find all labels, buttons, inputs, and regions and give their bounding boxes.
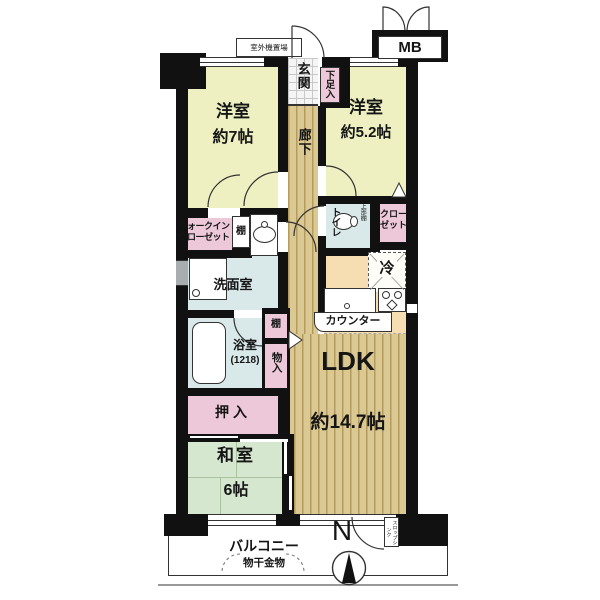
sliding-door xyxy=(190,436,238,439)
door-opening xyxy=(318,166,326,196)
burner-icon xyxy=(394,291,402,299)
floor-plan: 棚 カウンター MB 室外機置場 スロップシンク xyxy=(0,0,600,600)
slop-sink: スロップシンク xyxy=(384,517,399,547)
bath-name-label: 浴室 xyxy=(226,338,264,352)
shelf-bath-label: 棚 xyxy=(265,319,287,331)
sink-icon xyxy=(253,226,276,243)
bathtub-icon xyxy=(192,322,226,384)
japanese-room-size-label: 6帖 xyxy=(190,481,282,500)
washroom-label: 洗面室 xyxy=(190,277,276,293)
shelf-box-wic: 棚 xyxy=(232,216,250,248)
ldk-size-label: 約14.7帖 xyxy=(290,412,406,435)
ldk-name-label: LDK xyxy=(298,346,398,377)
window-washroom xyxy=(176,260,188,286)
wall xyxy=(176,55,188,520)
fridge-label: 冷 xyxy=(368,260,406,278)
laundry-hook-label: 物干金物 xyxy=(236,557,292,570)
wall xyxy=(278,252,288,308)
window xyxy=(200,57,264,67)
room7-size-label: 約7帖 xyxy=(188,128,278,147)
shelf-wic-label: 棚 xyxy=(236,226,246,238)
corridor-label: 廊下 xyxy=(296,128,312,156)
room52-name-label: 洋室 xyxy=(326,98,406,118)
faucet-icon xyxy=(261,221,268,228)
sliding-door xyxy=(289,476,292,510)
window-kitchen xyxy=(406,304,418,313)
entrance-label: 玄関 xyxy=(295,62,311,90)
bath-size-label: (1218) xyxy=(224,355,266,367)
meter-box-label: MB xyxy=(398,39,421,57)
door-opening xyxy=(278,222,288,252)
door-opening xyxy=(318,206,326,236)
kitchen-sink-icon xyxy=(324,288,376,314)
burner-icon xyxy=(382,291,390,299)
entrance-step xyxy=(288,104,318,106)
door-opening xyxy=(234,310,262,318)
toilet-label: トイレ xyxy=(328,207,340,237)
storage-label: 物入 xyxy=(270,352,283,373)
closet-label: クローゼット xyxy=(380,209,406,231)
sliding-door xyxy=(240,439,288,442)
toilet-tank-icon xyxy=(350,216,358,227)
window xyxy=(208,514,276,526)
room-western52-floor-lower xyxy=(326,106,406,196)
kitchen-drain-icon xyxy=(344,303,350,309)
balcony-label: バルコニー xyxy=(206,538,322,555)
counter-label: カウンター xyxy=(326,315,381,328)
slop-sink-label: スロップシンク xyxy=(386,518,398,546)
mb-door-arc xyxy=(383,7,405,30)
tatami-line xyxy=(188,477,282,478)
room52-size-label: 約5.2帖 xyxy=(318,124,414,142)
toilet-shelf-label: 上部棚 xyxy=(358,203,365,221)
wall xyxy=(176,388,290,396)
meter-box: MB xyxy=(378,36,442,59)
mb-door-arc xyxy=(407,7,429,30)
compass-north-label: N xyxy=(324,514,360,548)
walkin-closet-label: ウォークインクローゼット xyxy=(176,221,232,243)
oshiire-label: 押入 xyxy=(188,404,278,421)
door-opening xyxy=(278,172,288,208)
wall xyxy=(278,392,290,436)
room7-name-label: 洋室 xyxy=(188,102,278,122)
counter-plate: カウンター xyxy=(314,312,392,332)
balcony-outer-line xyxy=(158,584,458,586)
wall xyxy=(372,242,412,250)
japanese-room-name-label: 和室 xyxy=(190,446,282,466)
shoe-box-label: 下足入 xyxy=(323,70,334,99)
dk-ldk-divider xyxy=(324,333,406,334)
sliding-door xyxy=(284,440,287,474)
outdoor-unit-label: 室外機置場 xyxy=(250,43,288,52)
outdoor-unit-area: 室外機置場 xyxy=(236,38,302,57)
